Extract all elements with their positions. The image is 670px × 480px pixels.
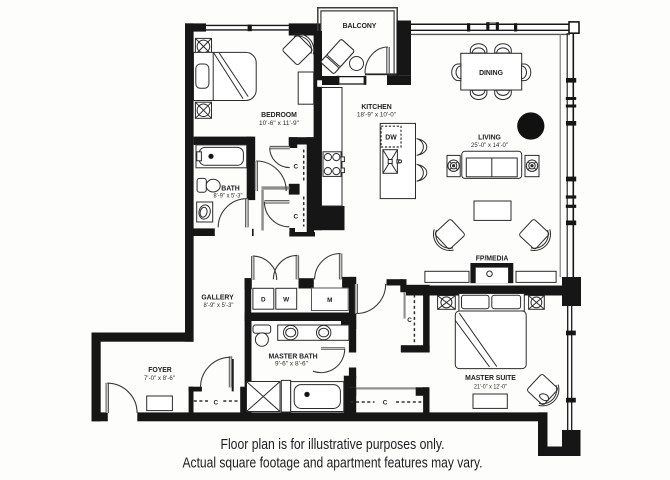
svg-text:8'-9" x 5'-3": 8'-9" x 5'-3" bbox=[214, 193, 243, 200]
svg-text:C: C bbox=[293, 163, 298, 170]
svg-text:Floor plan is for illustrative: Floor plan is for illustrative purposes … bbox=[221, 437, 445, 453]
svg-text:FP/MEDIA: FP/MEDIA bbox=[476, 256, 509, 263]
svg-text:7'-0" x 8'-6": 7'-0" x 8'-6" bbox=[144, 375, 175, 382]
svg-text:KITCHEN: KITCHEN bbox=[361, 104, 391, 111]
svg-text:FOYER: FOYER bbox=[148, 367, 172, 374]
svg-text:D: D bbox=[261, 297, 266, 304]
svg-text:18'-9" x 10'-0": 18'-9" x 10'-0" bbox=[357, 111, 396, 118]
svg-text:BALCONY: BALCONY bbox=[343, 23, 377, 30]
svg-text:10'-6" x 11'-9": 10'-6" x 11'-9" bbox=[259, 120, 299, 127]
svg-text:MASTER BATH: MASTER BATH bbox=[268, 353, 317, 360]
svg-text:C: C bbox=[213, 399, 218, 406]
svg-text:DW: DW bbox=[385, 135, 397, 142]
svg-text:25'-0" x 14'-0": 25'-0" x 14'-0" bbox=[471, 142, 508, 149]
svg-text:W: W bbox=[283, 297, 290, 304]
svg-text:C: C bbox=[293, 213, 298, 220]
svg-text:8'-9" x 5'-3": 8'-9" x 5'-3" bbox=[204, 302, 234, 309]
svg-text:DINING: DINING bbox=[479, 70, 503, 77]
svg-text:BEDROOM: BEDROOM bbox=[261, 112, 297, 119]
svg-text:M: M bbox=[327, 297, 332, 304]
svg-text:C: C bbox=[407, 317, 412, 324]
svg-text:9'-6" x 8'-6": 9'-6" x 8'-6" bbox=[275, 361, 308, 368]
svg-text:GALLERY: GALLERY bbox=[201, 295, 234, 302]
svg-text:LIVING: LIVING bbox=[478, 134, 501, 141]
svg-text:BATH: BATH bbox=[221, 185, 239, 192]
svg-text:MASTER SUITE: MASTER SUITE bbox=[465, 375, 516, 382]
svg-text:21'-0" x 12'-0": 21'-0" x 12'-0" bbox=[474, 383, 507, 390]
svg-text:Actual square footage and apar: Actual square footage and apartment feat… bbox=[183, 455, 483, 471]
svg-text:C: C bbox=[383, 399, 388, 406]
